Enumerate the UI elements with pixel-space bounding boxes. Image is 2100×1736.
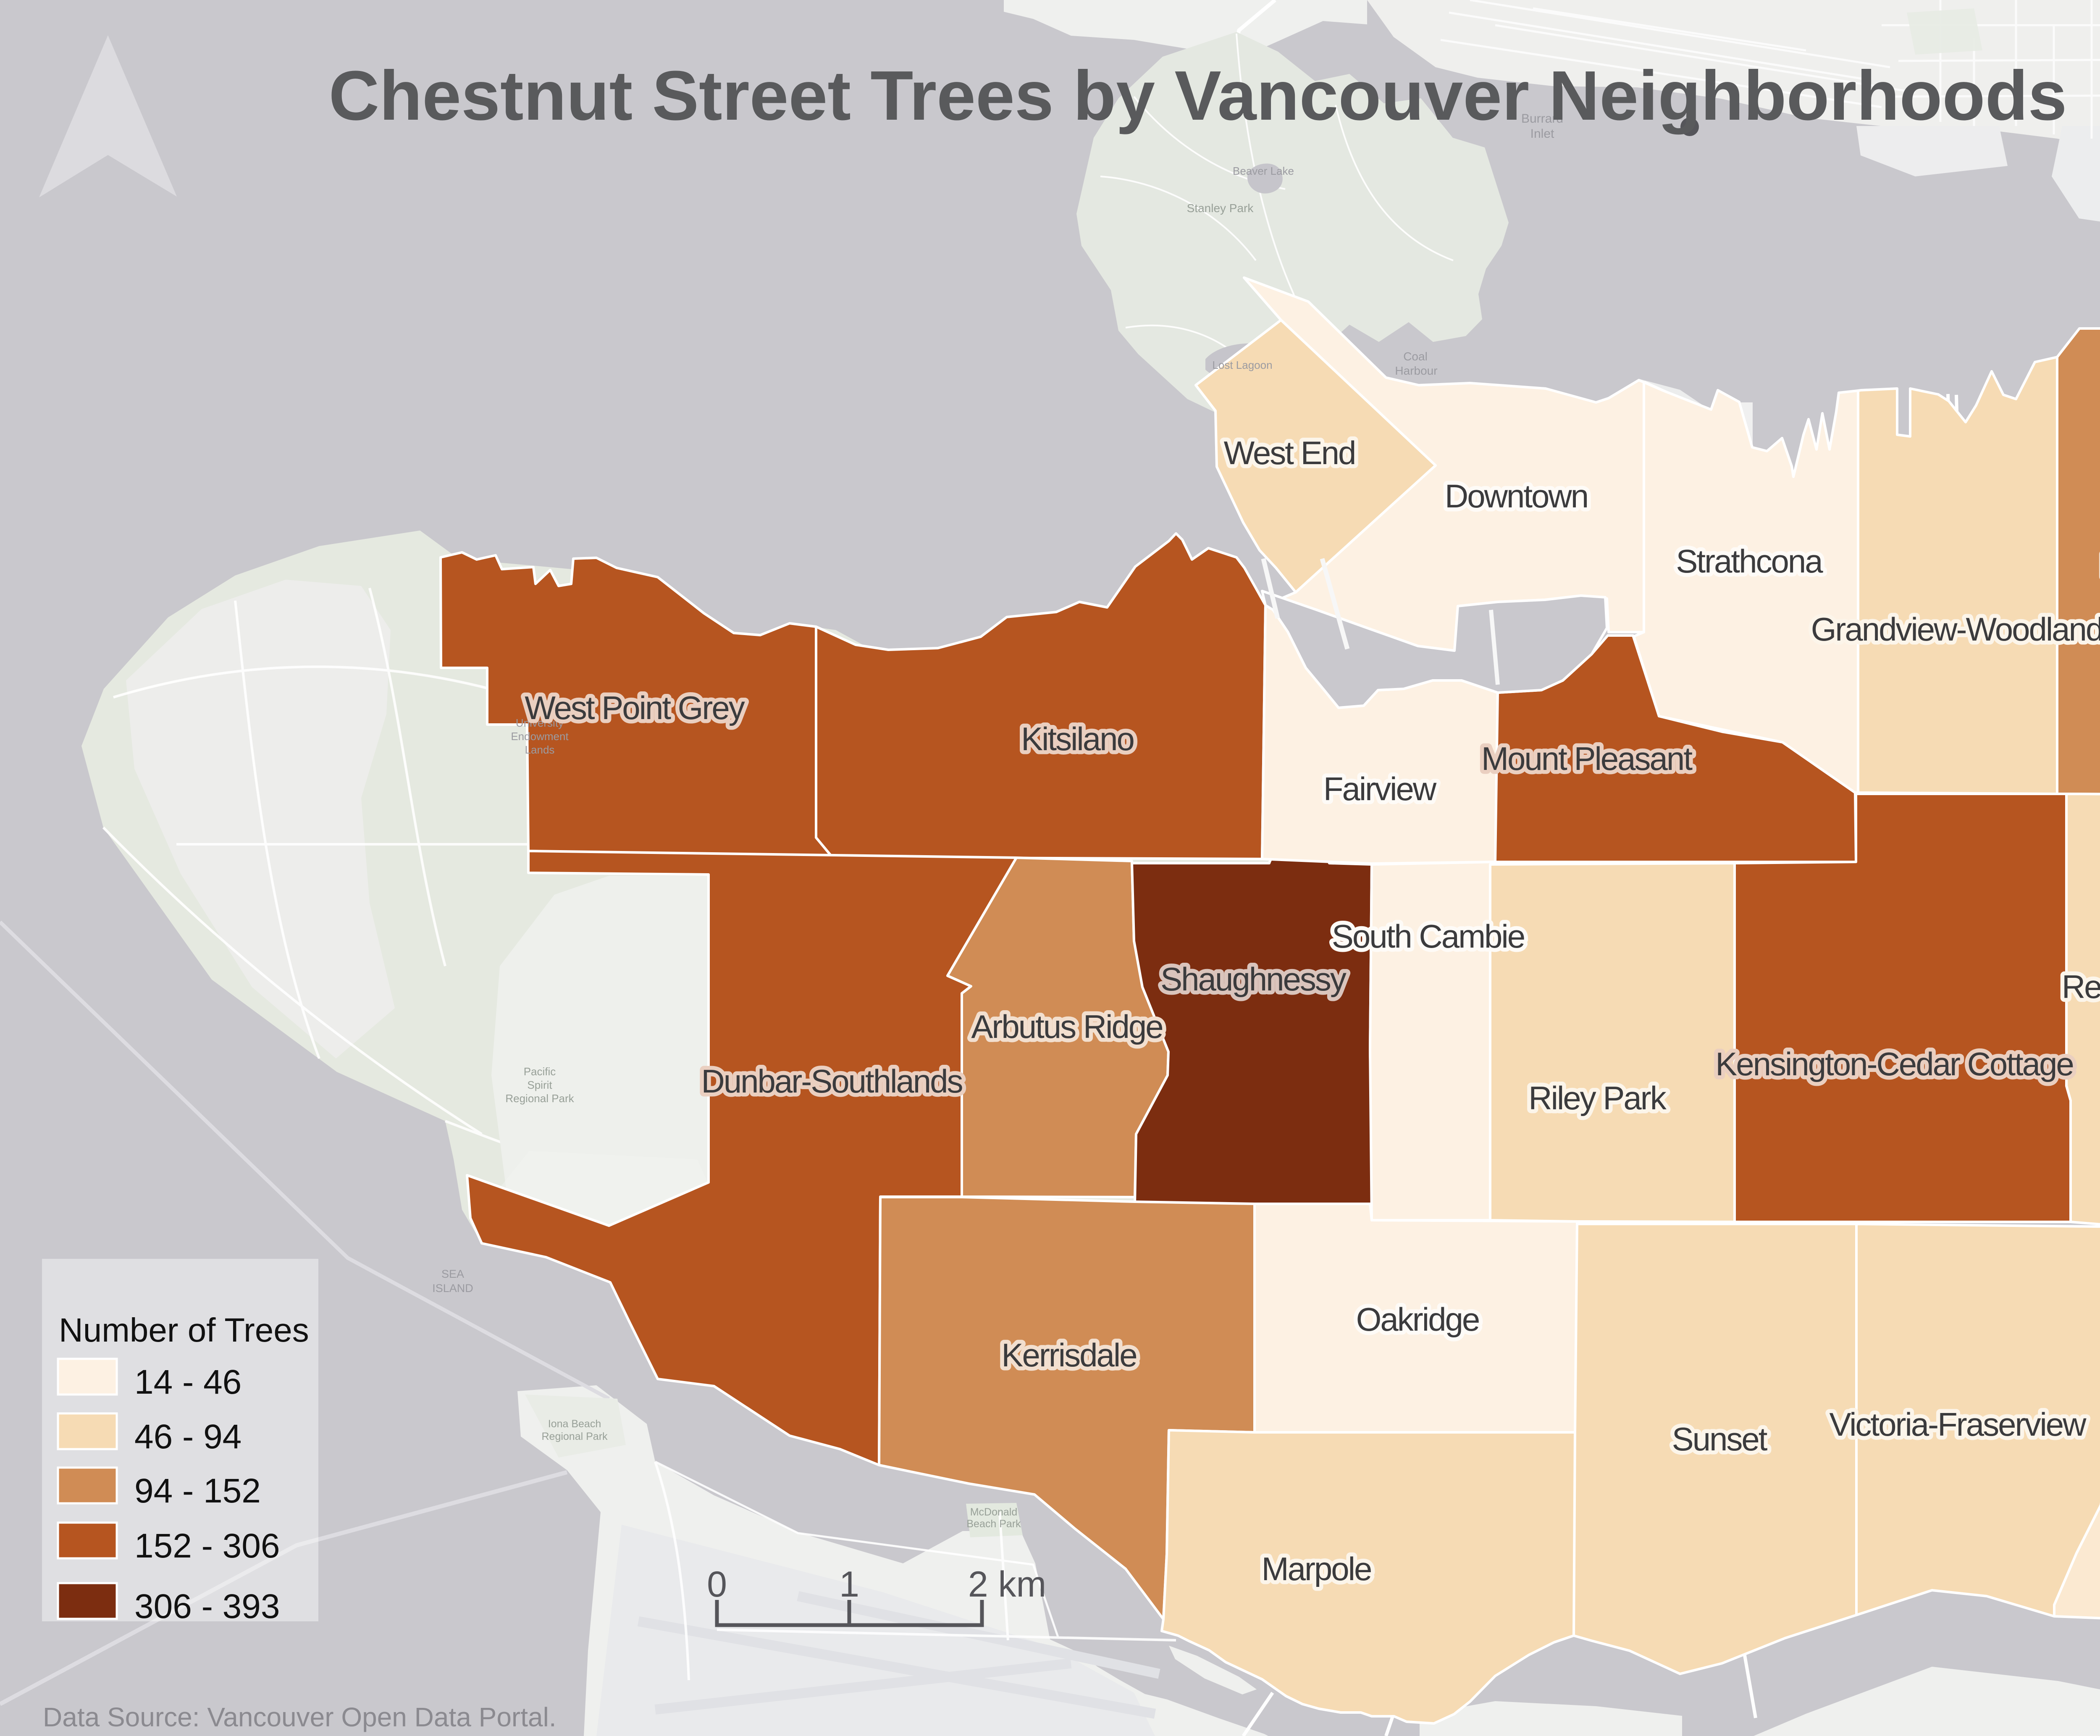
svg-text:South Cambie: South Cambie: [1332, 918, 1524, 955]
svg-text:Beach Park: Beach Park: [966, 1518, 1021, 1530]
svg-text:Kitsilano: Kitsilano: [1021, 720, 1134, 757]
svg-text:Stanley Park: Stanley Park: [1187, 202, 1254, 215]
svg-text:Marpole: Marpole: [1262, 1550, 1371, 1587]
svg-text:West Point Grey: West Point Grey: [525, 689, 745, 726]
svg-text:Regional Park: Regional Park: [541, 1431, 608, 1442]
svg-text:Chestnut Street Trees by Vanco: Chestnut Street Trees by Vancouver Neigh…: [329, 57, 2067, 135]
svg-text:ISLAND: ISLAND: [432, 1282, 473, 1295]
svg-text:Riley Park: Riley Park: [1528, 1079, 1667, 1116]
svg-text:Victoria-Fraserview: Victoria-Fraserview: [1829, 1406, 2087, 1443]
svg-text:Strathcona: Strathcona: [1676, 543, 1823, 580]
svg-text:Iona Beach: Iona Beach: [548, 1418, 601, 1430]
svg-text:Downtown: Downtown: [1445, 478, 1588, 515]
svg-text:Oakridge: Oakridge: [1356, 1301, 1479, 1338]
svg-text:Beaver Lake: Beaver Lake: [1233, 165, 1294, 177]
svg-text:Fairview: Fairview: [1323, 770, 1437, 807]
svg-text:Lost Lagoon: Lost Lagoon: [1212, 359, 1272, 371]
svg-text:Spirit: Spirit: [527, 1079, 552, 1091]
svg-text:Mount Pleasant: Mount Pleasant: [1481, 740, 1693, 777]
svg-text:Data Source: Vancouver Open Da: Data Source: Vancouver Open Data Portal.: [43, 1702, 556, 1732]
svg-text:152 - 306: 152 - 306: [134, 1527, 280, 1565]
svg-text:SEA: SEA: [441, 1268, 464, 1280]
svg-text:Arbutus Ridge: Arbutus Ridge: [971, 1008, 1162, 1045]
svg-text:Shaughnessy: Shaughnessy: [1160, 961, 1347, 998]
svg-text:Coal: Coal: [1403, 350, 1428, 363]
svg-text:Pacific: Pacific: [524, 1065, 556, 1078]
svg-text:2 km: 2 km: [968, 1564, 1046, 1605]
svg-text:Lands: Lands: [525, 743, 555, 756]
svg-text:West End: West End: [1224, 434, 1355, 471]
svg-text:Kensington-Cedar Cottage: Kensington-Cedar Cottage: [1715, 1045, 2073, 1082]
svg-text:1: 1: [839, 1564, 859, 1605]
svg-text:Regional Park: Regional Park: [505, 1092, 574, 1105]
svg-text:306 - 393: 306 - 393: [134, 1587, 280, 1626]
svg-text:Sunset: Sunset: [1672, 1421, 1768, 1458]
svg-text:Harbour: Harbour: [1395, 364, 1437, 377]
svg-text:Dunbar-Southlands: Dunbar-Southlands: [701, 1063, 962, 1100]
svg-text:Endowment: Endowment: [511, 730, 569, 743]
svg-text:14 - 46: 14 - 46: [134, 1363, 241, 1401]
svg-text:46 - 94: 46 - 94: [134, 1418, 241, 1456]
svg-text:Number of Trees: Number of Trees: [59, 1311, 309, 1349]
svg-text:Kerrisdale: Kerrisdale: [1001, 1337, 1136, 1374]
svg-text:0: 0: [707, 1564, 727, 1605]
svg-text:Renfrew-Collingwood: Renfrew-Collingwood: [2062, 968, 2100, 1005]
svg-text:94 - 152: 94 - 152: [134, 1472, 261, 1510]
svg-text:Grandview-Woodland: Grandview-Woodland: [1811, 611, 2100, 648]
svg-text:McDonald: McDonald: [970, 1506, 1018, 1518]
